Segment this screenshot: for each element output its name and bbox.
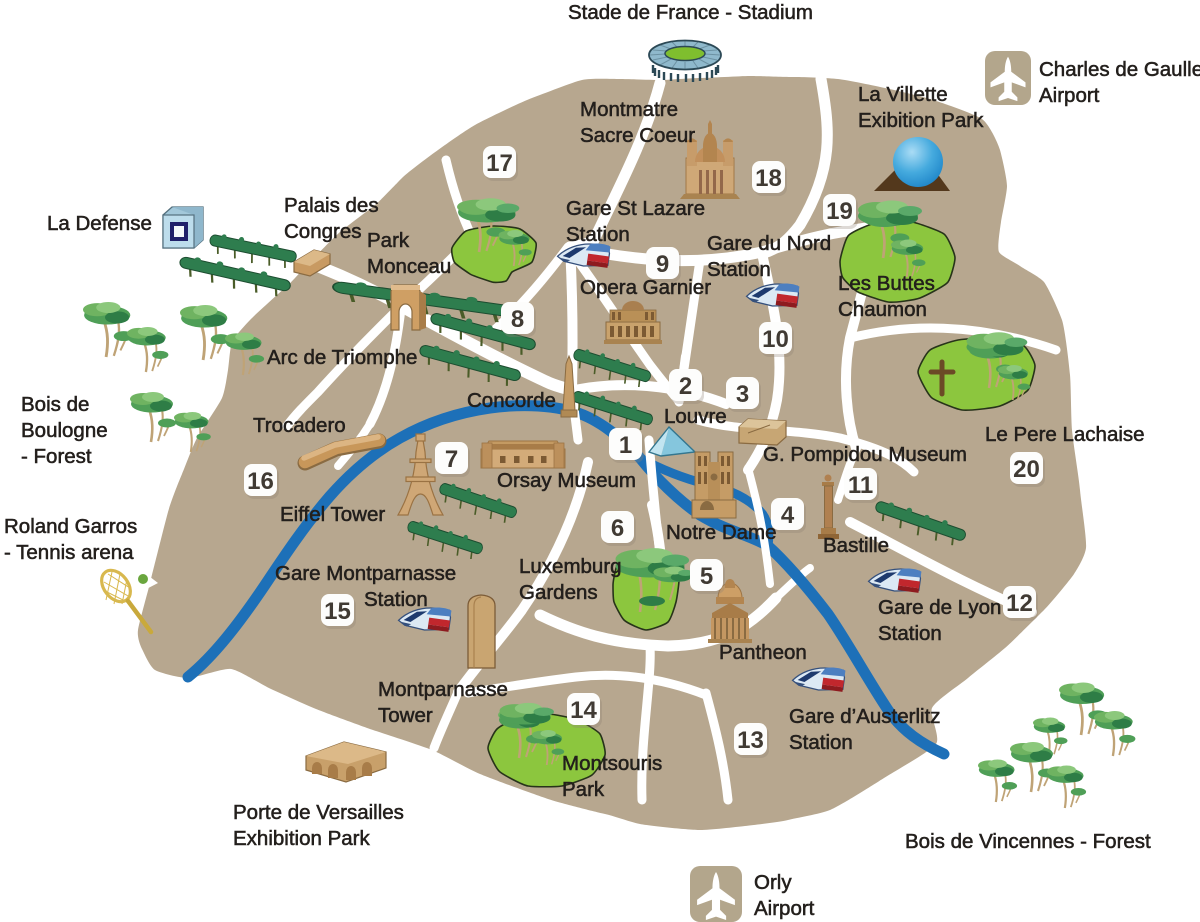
svg-text:6: 6 bbox=[611, 515, 624, 542]
svg-text:Bois de Vincennes - Forest: Bois de Vincennes - Forest bbox=[905, 830, 1151, 853]
svg-text:15: 15 bbox=[324, 598, 351, 625]
svg-text:Orsay Museum: Orsay Museum bbox=[497, 469, 636, 492]
svg-text:3: 3 bbox=[736, 381, 749, 408]
svg-text:G. Pompidou Museum: G. Pompidou Museum bbox=[763, 443, 967, 466]
svg-text:17: 17 bbox=[486, 150, 513, 177]
svg-text:20: 20 bbox=[1013, 456, 1040, 483]
svg-text:16: 16 bbox=[247, 468, 274, 495]
svg-text:9: 9 bbox=[656, 251, 669, 278]
svg-text:Station: Station bbox=[364, 588, 428, 611]
svg-text:Eiffel Tower: Eiffel Tower bbox=[280, 503, 385, 526]
svg-text:10: 10 bbox=[762, 326, 789, 353]
svg-text:Trocadero: Trocadero bbox=[253, 414, 346, 437]
svg-text:1: 1 bbox=[619, 432, 632, 459]
svg-text:Notre Dame: Notre Dame bbox=[666, 521, 777, 544]
svg-text:La Defense: La Defense bbox=[47, 212, 152, 235]
svg-text:19: 19 bbox=[826, 198, 853, 225]
svg-text:2: 2 bbox=[679, 373, 692, 400]
svg-text:11: 11 bbox=[848, 472, 873, 499]
svg-text:18: 18 bbox=[755, 165, 782, 192]
svg-text:Gare Montparnasse: Gare Montparnasse bbox=[275, 562, 456, 585]
svg-text:Concorde: Concorde bbox=[467, 389, 556, 412]
svg-text:Arc de Triomphe: Arc de Triomphe bbox=[267, 346, 417, 369]
svg-text:Louvre: Louvre bbox=[664, 405, 727, 428]
svg-text:Le Pere Lachaise: Le Pere Lachaise bbox=[985, 423, 1145, 446]
svg-text:12: 12 bbox=[1006, 590, 1033, 617]
svg-text:13: 13 bbox=[737, 727, 764, 754]
svg-text:7: 7 bbox=[445, 446, 458, 473]
svg-text:8: 8 bbox=[511, 306, 524, 333]
svg-text:Opera Garnier: Opera Garnier bbox=[580, 276, 711, 299]
svg-text:14: 14 bbox=[570, 697, 597, 724]
svg-text:4: 4 bbox=[781, 502, 795, 529]
svg-text:Bastille: Bastille bbox=[823, 534, 889, 557]
svg-text:5: 5 bbox=[700, 563, 713, 590]
svg-text:Stade de France - Stadium: Stade de France - Stadium bbox=[568, 1, 813, 24]
svg-text:Pantheon: Pantheon bbox=[719, 641, 807, 664]
